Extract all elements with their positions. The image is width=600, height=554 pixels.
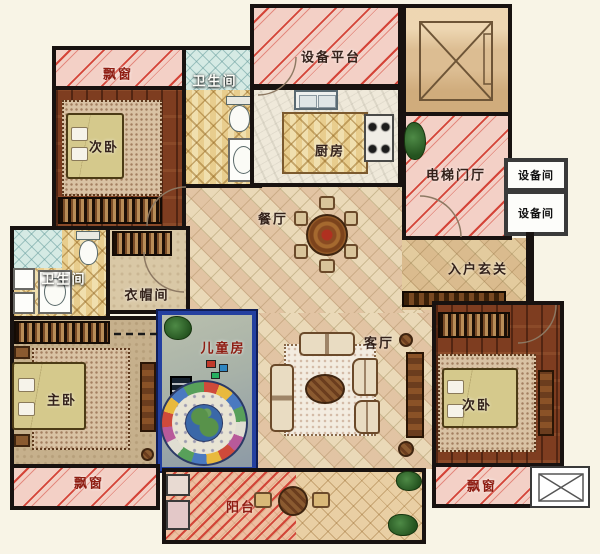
children-toy-blocks [206, 360, 216, 368]
bedroom1-wardrobe [58, 197, 162, 224]
master-wardrobe [14, 321, 110, 344]
label-bay-window-top-left: 飘窗 [103, 64, 133, 83]
master-dresser [140, 362, 156, 432]
dining-chair [294, 244, 308, 259]
balcony-plant [396, 471, 422, 491]
label-dining-room: 餐厅 [258, 209, 288, 228]
window-box-bottom-right [530, 466, 590, 508]
living-tv-cabinet [406, 352, 424, 438]
master-stool [141, 448, 154, 461]
cloakroom-wardrobe [112, 231, 172, 256]
balcony-stool [312, 492, 330, 508]
balcony-sink [166, 474, 190, 496]
dining-floor [186, 187, 434, 313]
bathroom-master-cabinet [13, 292, 35, 314]
hall-plant [404, 122, 426, 160]
dining-chair [344, 211, 358, 226]
elevator-shaft [402, 4, 512, 116]
children-world-rug [160, 380, 248, 466]
dining-chair [344, 244, 358, 259]
label-entry-foyer: 入户玄关 [448, 259, 508, 278]
floor-plan: 飘窗 次卧 卫生间 设备平台 厨房 电梯门厅 设备间 设备间 餐厅 入户玄关 卫… [0, 0, 600, 554]
label-bathroom-master: 卫生间 [41, 269, 86, 288]
bathroom-top-toilet-tank [226, 96, 252, 105]
master-nightstand [14, 434, 30, 447]
label-living-room: 客厅 [364, 333, 394, 352]
label-cloakroom: 衣帽间 [124, 285, 169, 304]
label-bedroom-top-left: 次卧 [89, 137, 119, 156]
balcony-washer [166, 500, 190, 530]
children-toy-blocks [219, 364, 228, 372]
bathroom-master-washer [13, 268, 35, 290]
living-stool [398, 441, 414, 457]
living-armchair [352, 358, 378, 396]
balcony-stool [254, 492, 272, 508]
label-master-bedroom: 主卧 [47, 390, 77, 409]
living-armchair [354, 400, 380, 434]
balcony-table [278, 486, 308, 516]
dining-chair [319, 196, 335, 210]
balcony-plant [388, 514, 418, 536]
label-balcony: 阳台 [226, 497, 256, 516]
label-elevator-hall: 电梯门厅 [426, 165, 486, 184]
label-bathroom-top: 卫生间 [192, 71, 237, 90]
label-equipment-room-2: 设备间 [518, 205, 554, 221]
bathroom-top-toilet-bowl [229, 105, 250, 132]
dining-chair [294, 211, 308, 226]
label-equipment-room-1: 设备间 [518, 167, 554, 183]
label-children-room: 儿童房 [200, 338, 245, 357]
children-room-plant [164, 316, 192, 340]
bedroom2-dresser [538, 370, 554, 436]
living-coffee-table [305, 374, 345, 404]
bedroom2-wardrobe [438, 312, 510, 338]
kitchen-stove [364, 114, 394, 162]
dining-table [306, 214, 348, 256]
bathroom-master-shower-tiles [14, 230, 62, 268]
dining-chair [319, 259, 335, 273]
wall-foyer-right [526, 232, 534, 310]
label-bay-window-bottom-right: 飘窗 [467, 476, 497, 495]
children-toy-blocks [211, 372, 220, 379]
master-nightstand [14, 346, 30, 359]
label-bedroom-right: 次卧 [462, 395, 492, 414]
living-sofa-left [270, 364, 294, 432]
label-bay-window-bottom-left: 飘窗 [74, 473, 104, 492]
living-loveseat [299, 332, 355, 356]
bathroom-master-toilet-tank [76, 231, 100, 240]
living-pouf [399, 333, 413, 347]
kitchen-sink [294, 90, 338, 110]
label-kitchen: 厨房 [315, 141, 345, 160]
bathroom-master-toilet-bowl [79, 240, 98, 265]
label-equipment-platform: 设备平台 [301, 47, 361, 66]
